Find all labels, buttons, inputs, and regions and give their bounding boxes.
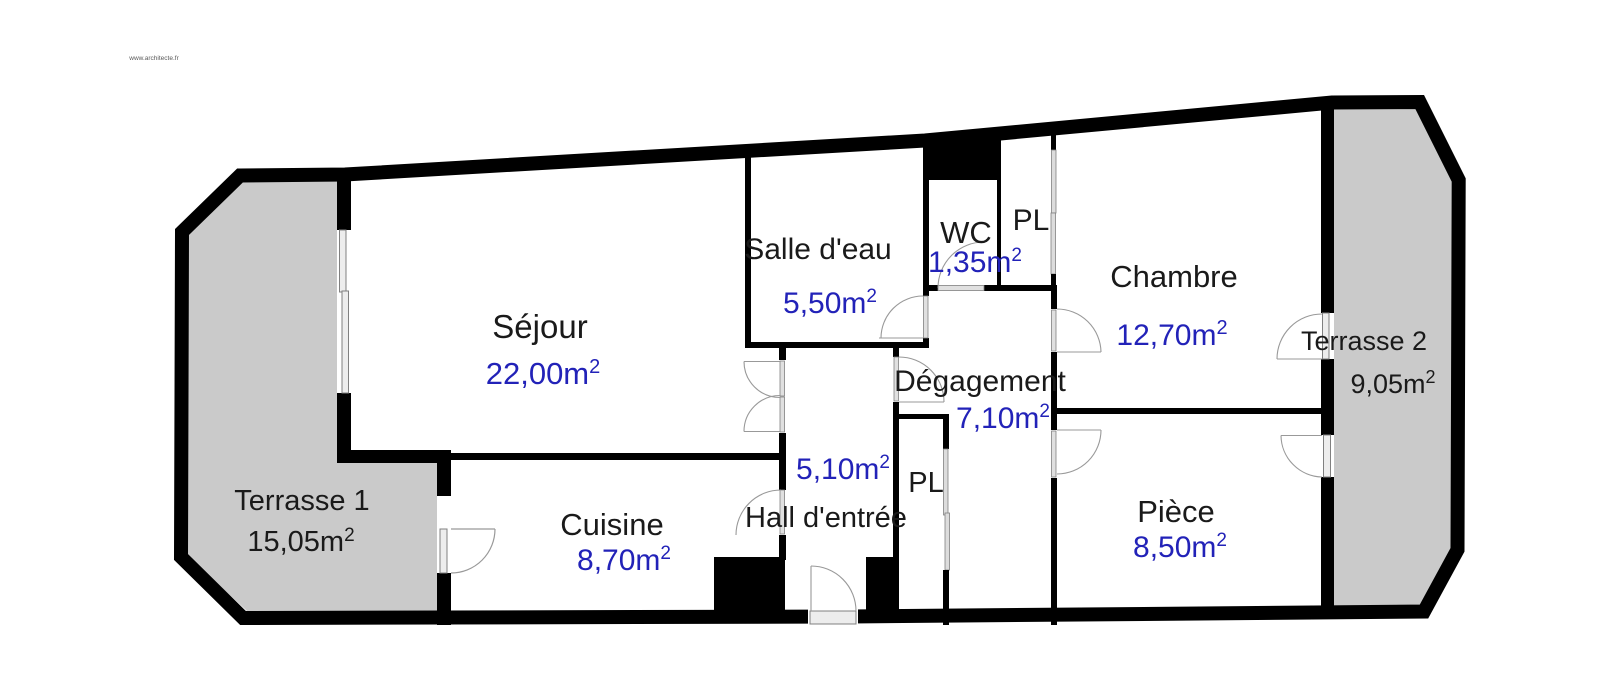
svg-text:Salle d'eau: Salle d'eau bbox=[744, 233, 892, 266]
svg-text:12,70m2: 12,70m2 bbox=[1116, 317, 1227, 352]
svg-text:PL: PL bbox=[1013, 204, 1050, 237]
svg-text:Séjour: Séjour bbox=[492, 308, 587, 345]
svg-text:7,10m2: 7,10m2 bbox=[956, 401, 1050, 435]
svg-text:8,70m2: 8,70m2 bbox=[577, 543, 671, 577]
svg-text:Dégagement: Dégagement bbox=[894, 365, 1066, 398]
svg-text:www.architecte.fr: www.architecte.fr bbox=[128, 55, 179, 62]
svg-text:Terrasse 1: Terrasse 1 bbox=[234, 485, 369, 517]
svg-text:WC: WC bbox=[940, 215, 992, 250]
svg-text:Terrasse 2: Terrasse 2 bbox=[1301, 326, 1427, 356]
svg-text:1,35m2: 1,35m2 bbox=[928, 245, 1022, 279]
svg-text:Cuisine: Cuisine bbox=[560, 507, 663, 542]
svg-text:22,00m2: 22,00m2 bbox=[486, 356, 601, 391]
svg-text:9,05m2: 9,05m2 bbox=[1350, 367, 1435, 399]
svg-text:8,50m2: 8,50m2 bbox=[1133, 530, 1227, 564]
svg-text:15,05m2: 15,05m2 bbox=[247, 525, 354, 558]
svg-text:Hall d'entrée: Hall d'entrée bbox=[745, 502, 907, 534]
svg-text:5,50m2: 5,50m2 bbox=[783, 286, 877, 320]
svg-text:Chambre: Chambre bbox=[1110, 259, 1238, 294]
svg-text:PL: PL bbox=[908, 467, 943, 499]
svg-text:5,10m2: 5,10m2 bbox=[796, 452, 890, 486]
svg-text:Pièce: Pièce bbox=[1137, 494, 1215, 529]
